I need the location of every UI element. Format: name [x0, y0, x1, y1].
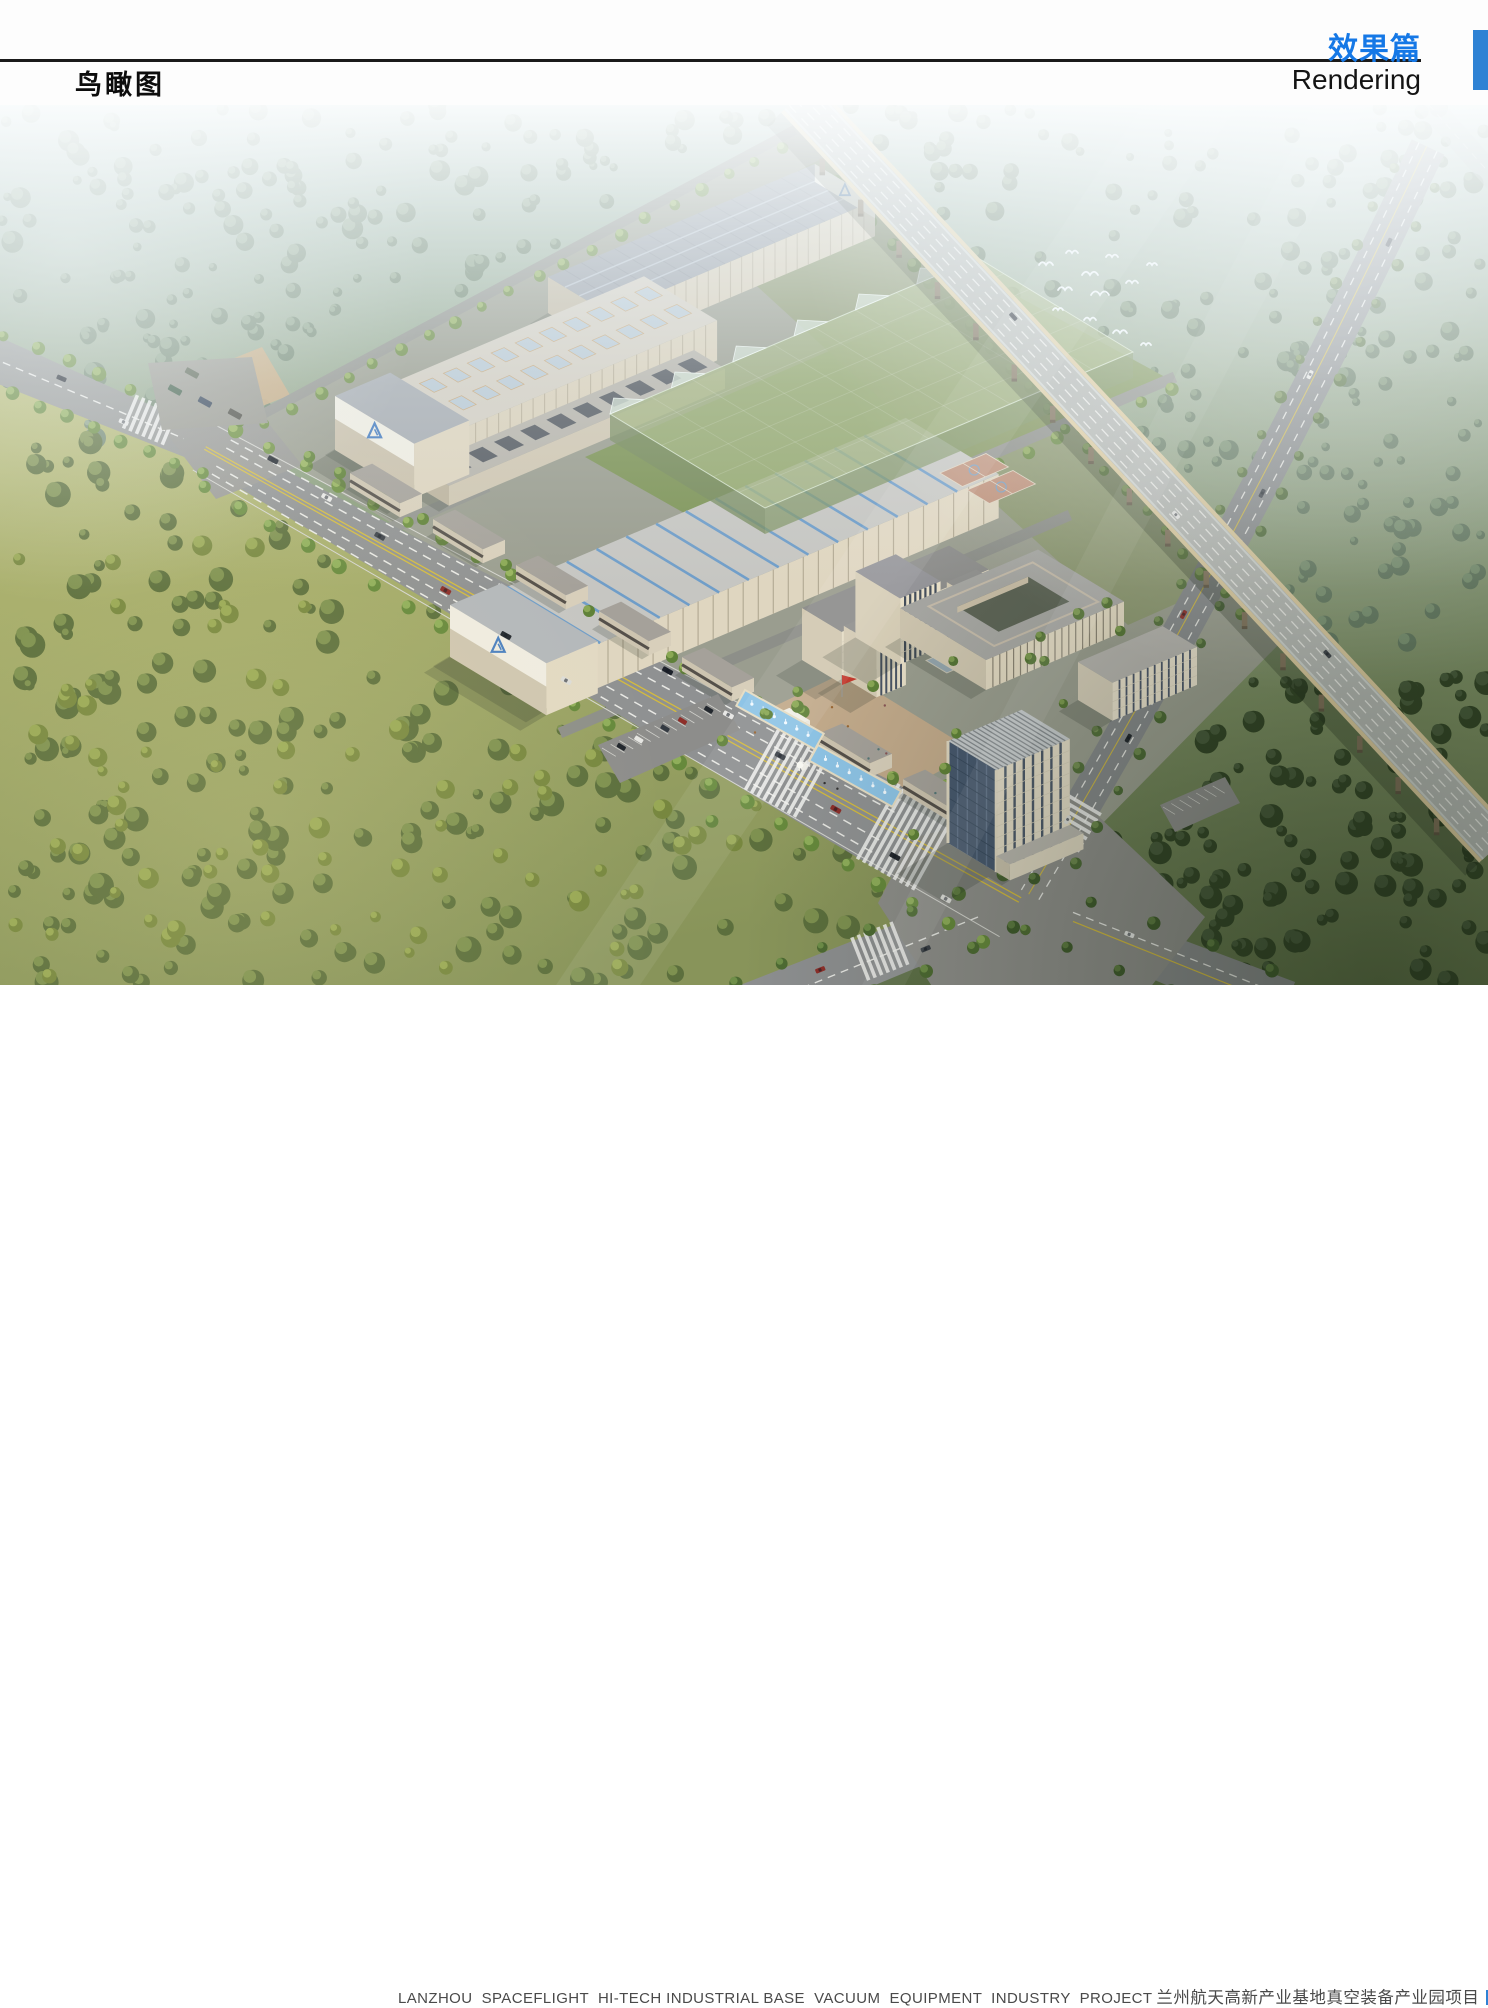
project-name-cn: 兰州航天高新产业基地真空装备产业园项目: [1156, 1989, 1479, 2007]
page-header: 鸟瞰图 效果篇 Rendering: [0, 0, 1488, 105]
project-caption: LANZHOU SPACEFLIGHT HI-TECH INDUSTRIAL B…: [398, 1984, 1488, 2008]
header-accent-bar: [1473, 30, 1488, 90]
page-footer: LANZHOU SPACEFLIGHT HI-TECH INDUSTRIAL B…: [0, 985, 1488, 1052]
aerial-rendering-scene: [0, 105, 1488, 985]
view-title: 鸟瞰图: [75, 63, 165, 102]
project-name-en: LANZHOU SPACEFLIGHT HI-TECH INDUSTRIAL B…: [398, 1990, 1152, 2007]
section-title-cn: 效果篇: [1328, 24, 1421, 68]
presentation-page: 鸟瞰图 效果篇 Rendering LANZHOU SPACEFLIGHT HI…: [0, 0, 1488, 1052]
aerial-rendering-image: [0, 105, 1488, 985]
section-title-en: Rendering: [1292, 64, 1421, 96]
header-rule: [0, 59, 1421, 62]
